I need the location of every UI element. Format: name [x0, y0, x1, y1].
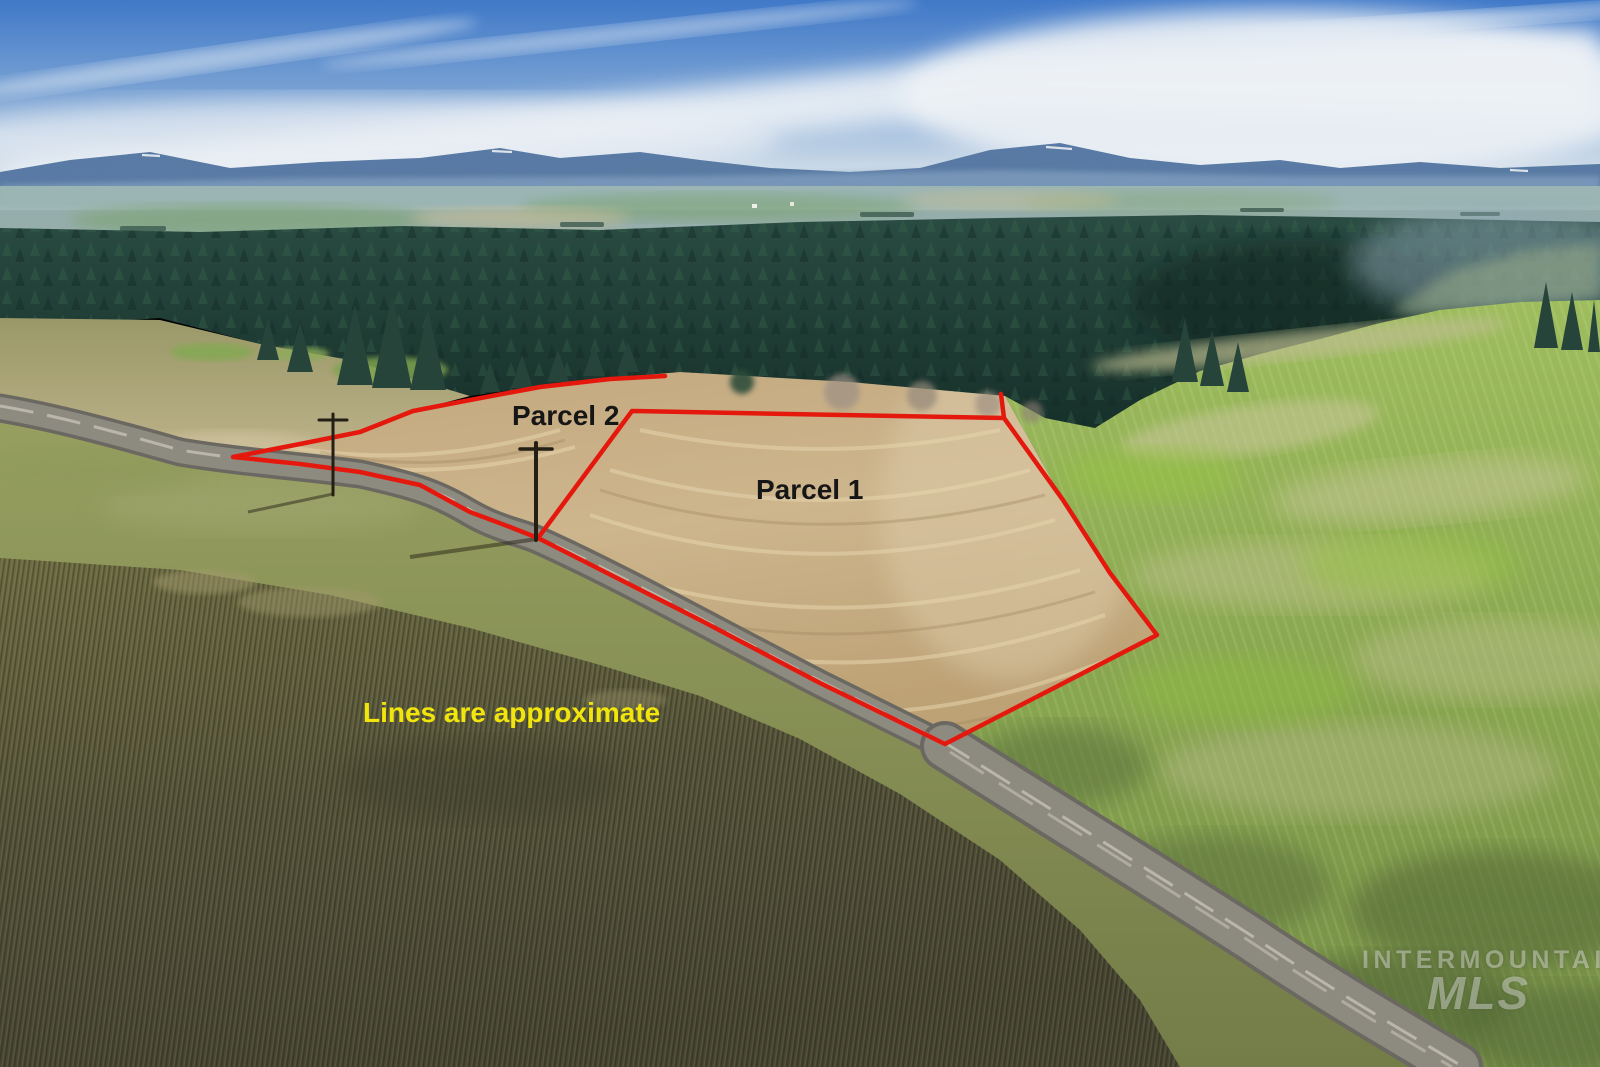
disclaimer-label: Lines are approximate: [363, 699, 660, 727]
watermark-mls: MLS: [1427, 966, 1530, 1020]
farm-building: [790, 202, 794, 206]
bright-grass: [1060, 449, 1240, 501]
bare-tree: [824, 374, 860, 410]
farm-building: [752, 204, 757, 208]
parcel2-label: Parcel 2: [512, 402, 619, 430]
parcel1-label: Parcel 1: [756, 476, 863, 504]
meadow-patch: [170, 343, 254, 361]
soil-patch: [153, 570, 257, 594]
aerial-photo: Parcel 2 Parcel 1 Lines are approximate …: [0, 0, 1600, 1067]
parcel-boundary-spur: [1001, 394, 1004, 418]
terrain-scene: [0, 0, 1600, 1067]
